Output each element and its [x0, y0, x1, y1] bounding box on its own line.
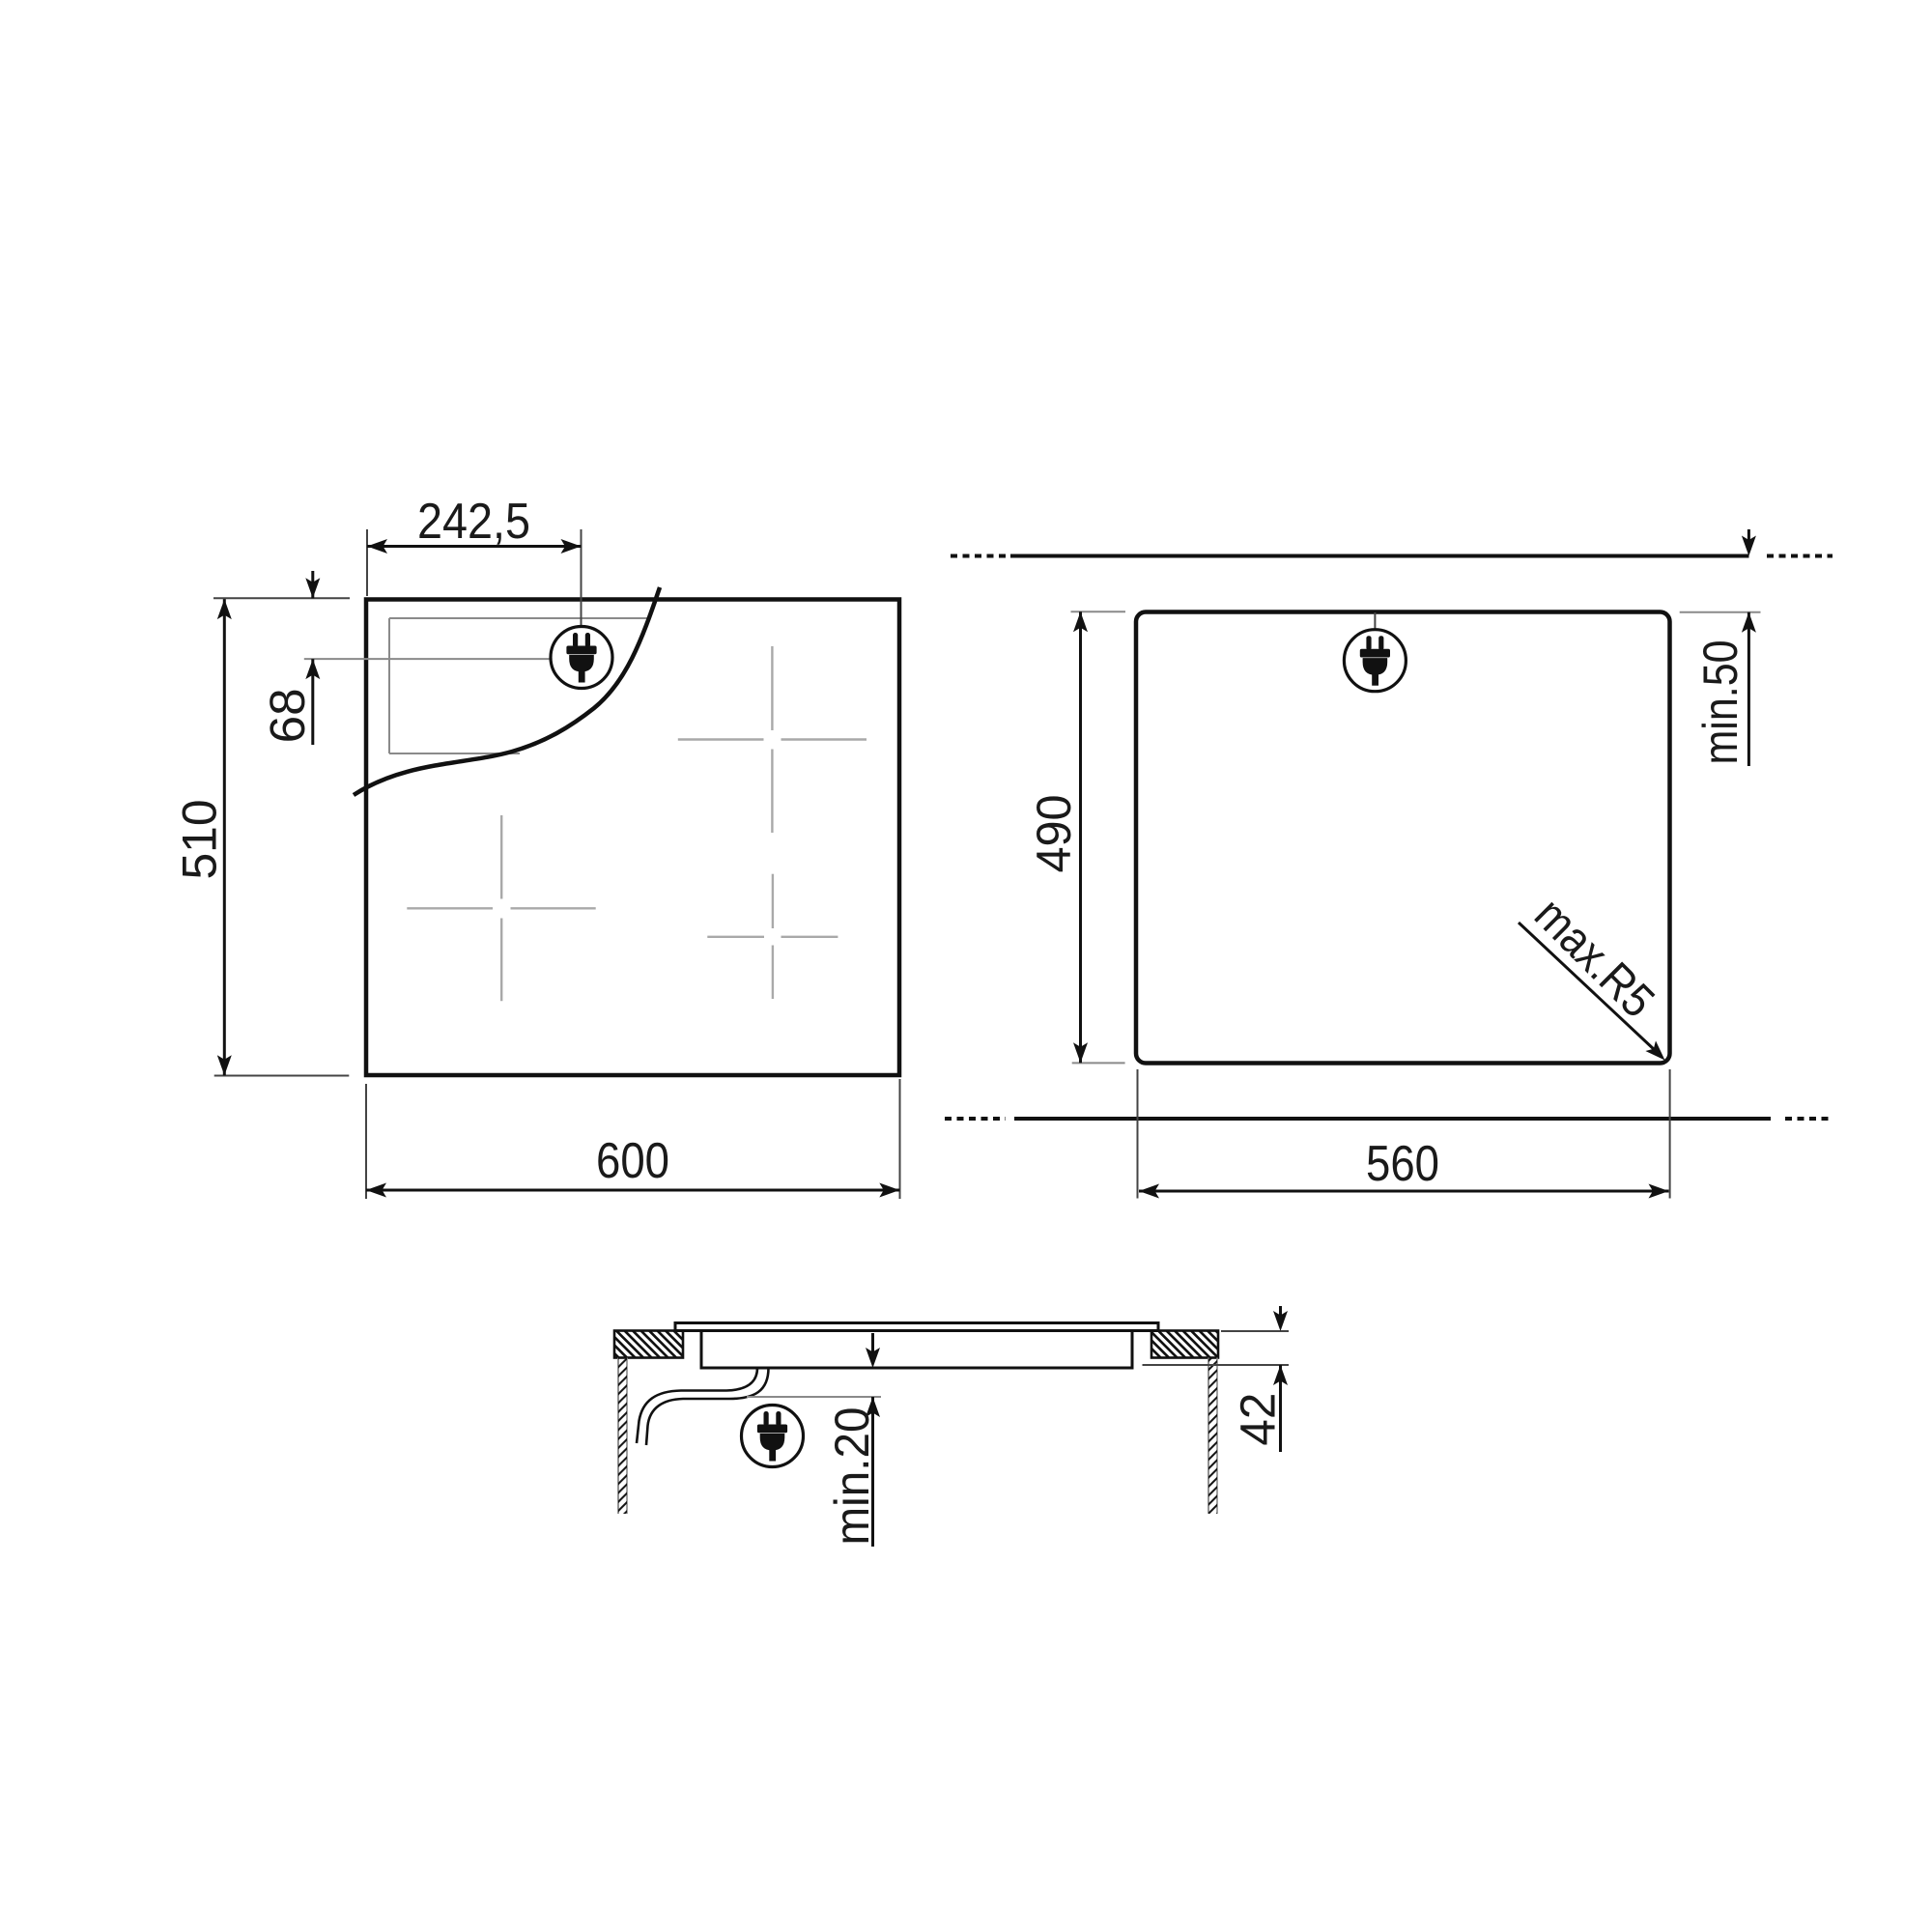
svg-text:68: 68	[260, 688, 315, 743]
svg-text:242,5: 242,5	[417, 494, 530, 550]
svg-text:490: 490	[1027, 795, 1081, 873]
svg-text:600: 600	[596, 1133, 669, 1189]
svg-text:560: 560	[1366, 1136, 1439, 1192]
svg-text:510: 510	[173, 800, 227, 880]
svg-text:max.R5: max.R5	[1524, 889, 1663, 1028]
svg-text:min.20: min.20	[825, 1407, 879, 1546]
svg-text:min.50: min.50	[1693, 640, 1747, 765]
svg-text:42: 42	[1231, 1393, 1286, 1446]
